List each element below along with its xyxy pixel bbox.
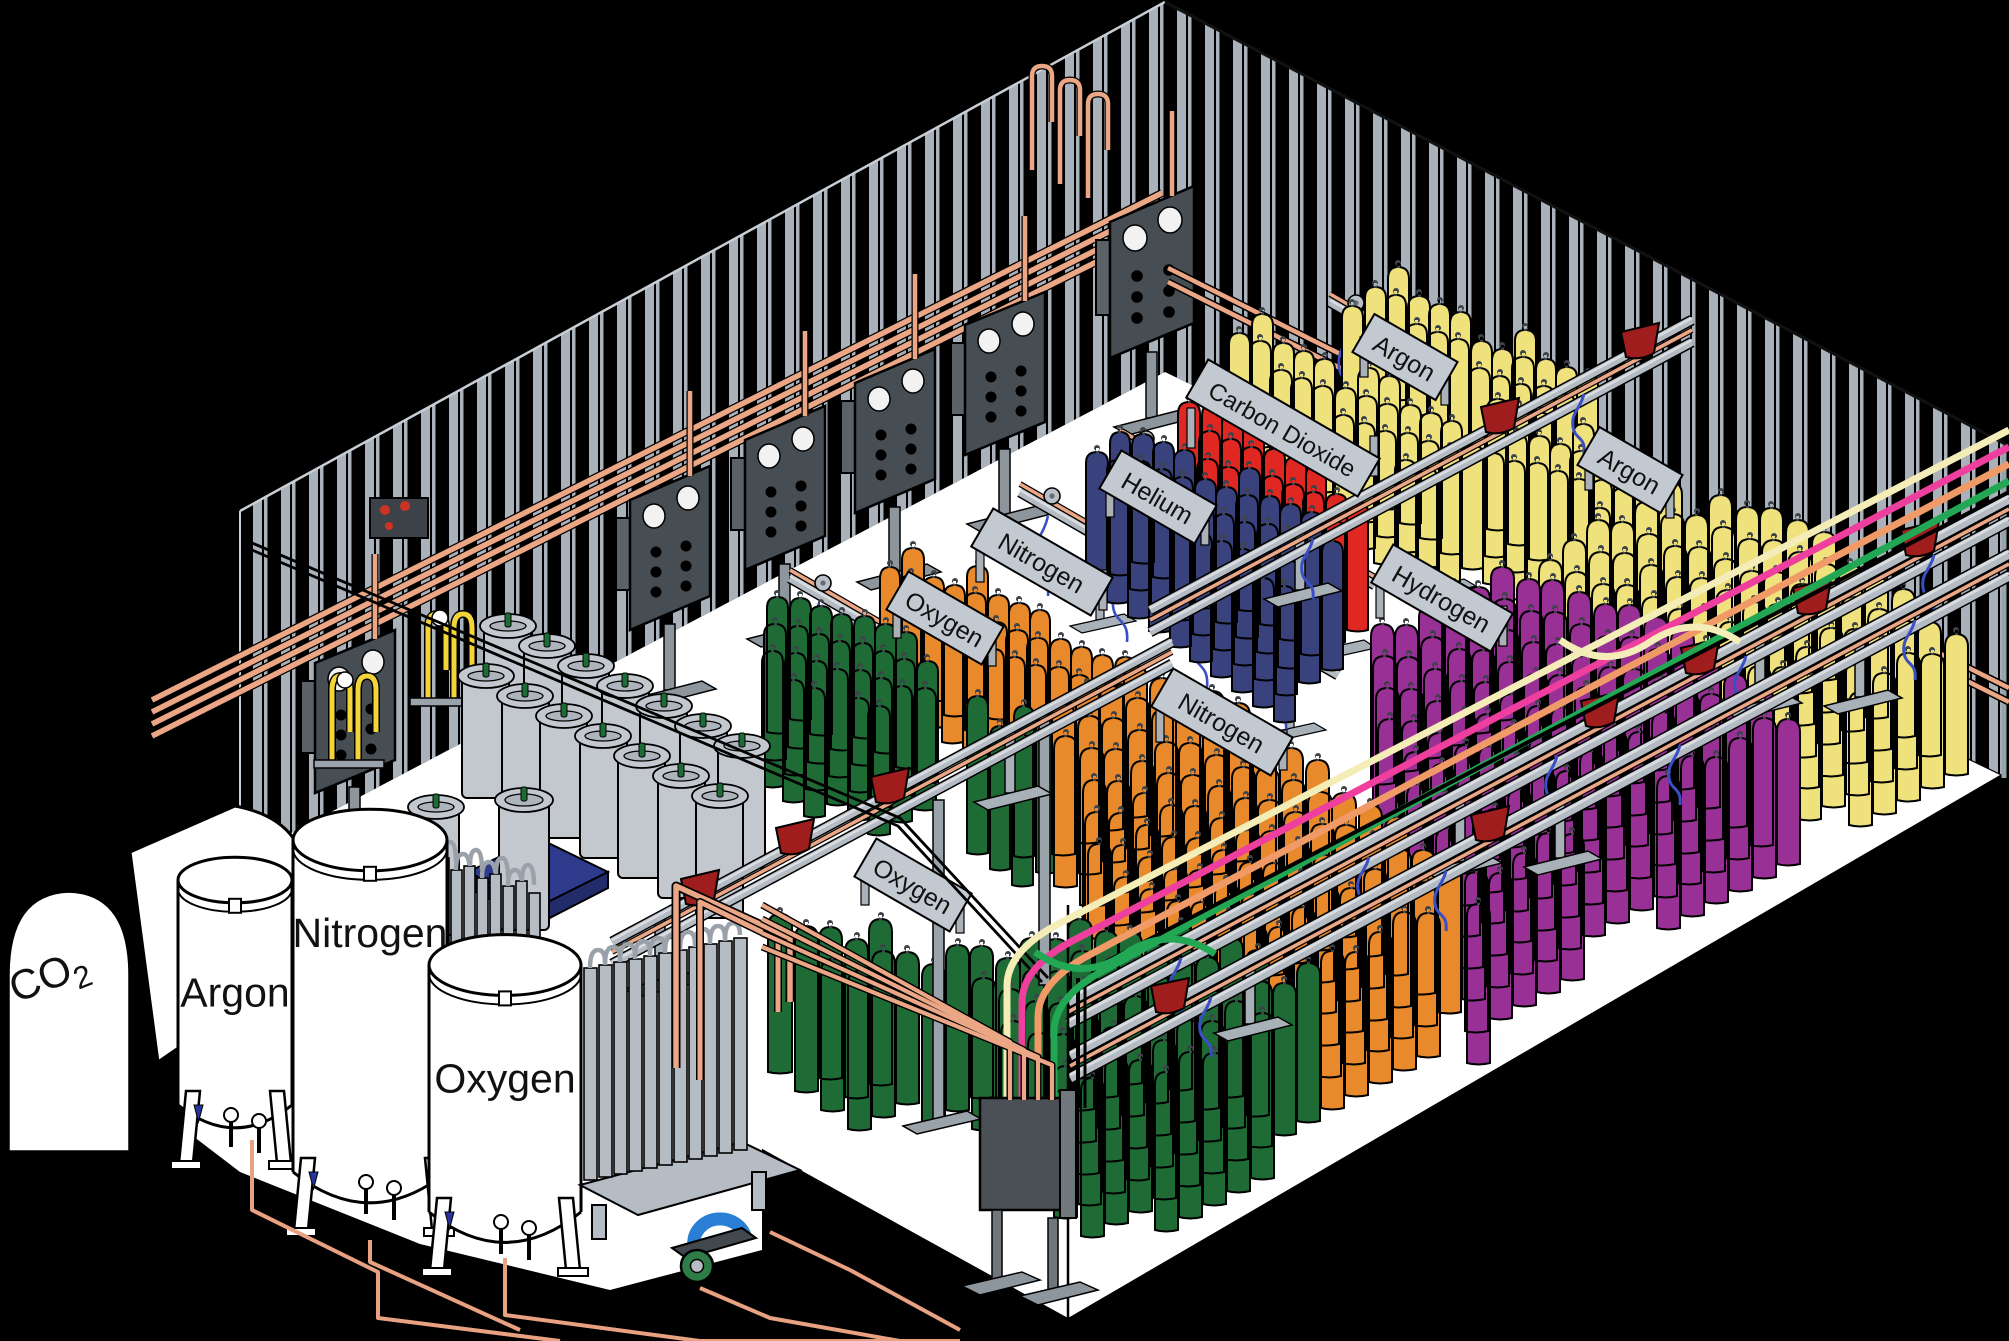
svg-text:Oxygen: Oxygen: [434, 1056, 575, 1102]
svg-text:Nitrogen: Nitrogen: [293, 910, 448, 956]
svg-text:Argon: Argon: [180, 970, 289, 1016]
